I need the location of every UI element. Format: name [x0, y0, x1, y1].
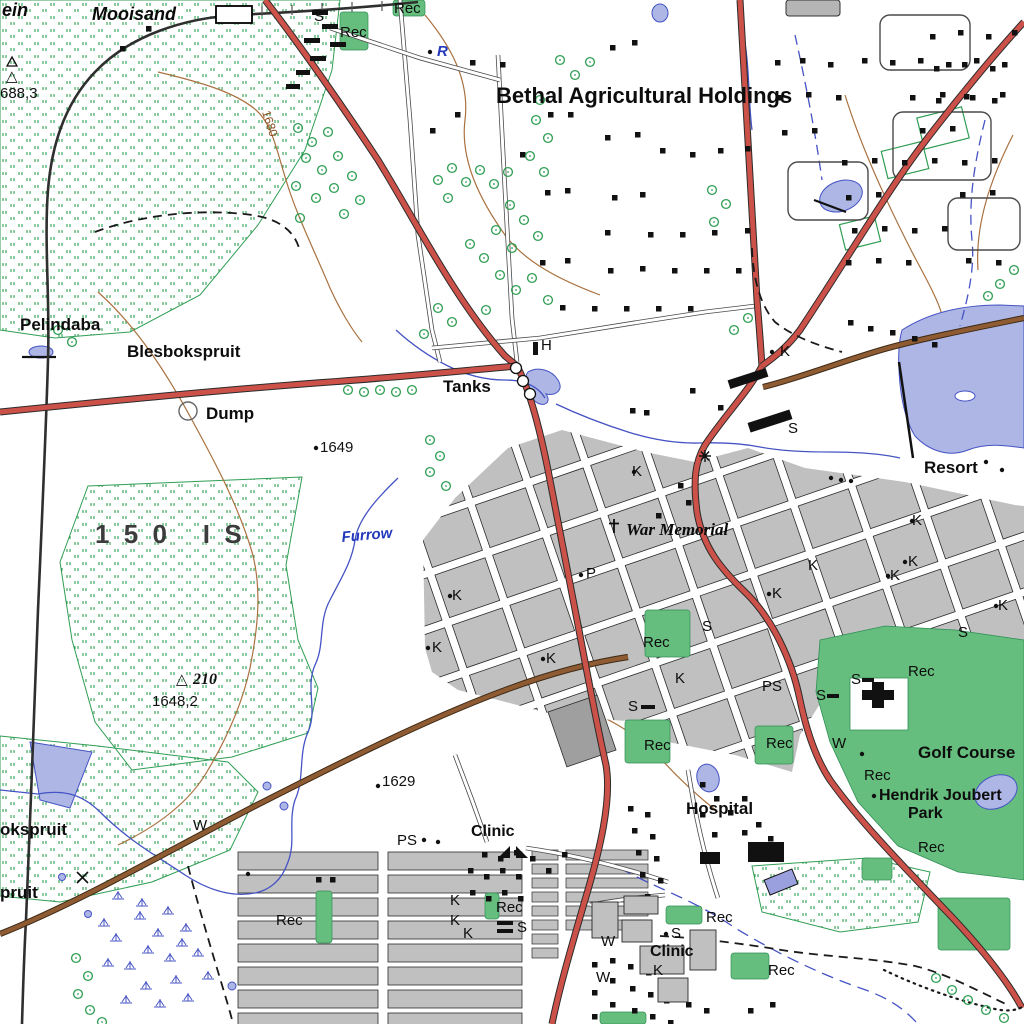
tree-dot [1013, 269, 1015, 271]
settlement-block [658, 978, 688, 1002]
building [890, 60, 896, 66]
map-label-war-memorial: War Memorial [626, 520, 728, 539]
rec-ground [600, 1012, 646, 1024]
building [848, 320, 854, 326]
marker-dot [829, 476, 833, 480]
tree-dot [479, 169, 481, 171]
map-label-k: K [546, 650, 556, 667]
map-label-1649: 1649 [320, 439, 353, 456]
building [654, 856, 660, 862]
building [736, 268, 742, 274]
tree-dot [987, 295, 989, 297]
building [644, 410, 650, 416]
township-block [238, 990, 378, 1008]
building [970, 95, 976, 101]
tree-dot [363, 391, 365, 393]
tree-dot [523, 219, 525, 221]
map-label-k: K [463, 925, 473, 942]
tank-icon [511, 363, 522, 374]
map-label-k: K [450, 912, 460, 929]
township-block [238, 967, 378, 985]
marker-dot [860, 752, 864, 756]
building [640, 266, 646, 272]
map-label-s: S [851, 671, 861, 688]
map-label-210: 210 [192, 671, 217, 688]
building [990, 66, 996, 72]
building [920, 128, 926, 134]
map-label-hospital: Hospital [686, 799, 753, 818]
rec-ground [862, 858, 892, 880]
building [950, 126, 956, 132]
building [876, 192, 882, 198]
tree-dot [547, 137, 549, 139]
tank-icon [518, 376, 529, 387]
tree-dot [535, 119, 537, 121]
building [650, 834, 656, 840]
building [430, 128, 436, 134]
building [146, 26, 152, 32]
map-label-h: H [541, 337, 552, 354]
township-strip [532, 892, 558, 902]
map-label-golf-course: Golf Course [918, 743, 1015, 762]
map-label-w: W [601, 933, 616, 950]
tree-dot [559, 59, 561, 61]
tree-dot [589, 61, 591, 63]
building [1000, 92, 1006, 98]
building [962, 160, 968, 166]
map-label-k: K [452, 587, 462, 604]
pond [652, 4, 668, 22]
building [624, 306, 630, 312]
tree-dot [485, 309, 487, 311]
map-label-p: P [586, 565, 596, 582]
tree-dot [711, 189, 713, 191]
building [502, 890, 508, 896]
building [648, 232, 654, 238]
building [640, 192, 646, 198]
map-label-s: S [671, 925, 681, 942]
map-label-rec: Rec [276, 912, 303, 929]
building [678, 483, 684, 489]
tree-dot [379, 389, 381, 391]
tree-dot [343, 213, 345, 215]
building-bar [322, 24, 338, 29]
tree-dot [713, 221, 715, 223]
map-label-blesbokspruit: Blesbokspruit [127, 342, 241, 361]
building [568, 112, 574, 118]
marker-dot [579, 573, 583, 577]
building [690, 388, 696, 394]
building [632, 40, 638, 46]
tree-dot [543, 171, 545, 173]
building [672, 268, 678, 274]
building [718, 405, 724, 411]
lake-island [955, 391, 975, 401]
tree-dot [351, 175, 353, 177]
building-bar [296, 70, 310, 75]
tree-dot [445, 485, 447, 487]
marker-dot [839, 478, 843, 482]
building [470, 60, 476, 66]
building-bar [827, 694, 839, 698]
building [690, 152, 696, 158]
map-label-r: R [437, 43, 448, 60]
map-label-ein: ein [2, 0, 28, 20]
building [640, 872, 646, 878]
monument-icon [533, 342, 538, 355]
map-label-s: S [628, 698, 638, 715]
map-label-rec: Rec [643, 634, 670, 651]
building-bar [310, 56, 326, 61]
building [592, 306, 598, 312]
building [910, 95, 916, 101]
building [960, 192, 966, 198]
building [548, 112, 554, 118]
township-block [388, 1013, 522, 1024]
building [565, 258, 571, 264]
township-strip [532, 920, 558, 930]
tree-dot [327, 131, 329, 133]
township-block [238, 944, 378, 962]
map-label-rec: Rec [706, 909, 733, 926]
map-label-s: S [788, 420, 798, 437]
building-bar [304, 38, 320, 43]
building [852, 228, 858, 234]
building [486, 896, 492, 902]
tree-dot [574, 74, 576, 76]
map-label--: △ [176, 671, 188, 688]
tree-dot [437, 307, 439, 309]
tree-dot [733, 329, 735, 331]
map-label-rec: Rec [766, 735, 793, 752]
building [912, 336, 918, 342]
tree-dot [951, 989, 953, 991]
map-label-clinic: Clinic [650, 943, 694, 960]
star-icon [699, 450, 711, 462]
building [686, 1002, 692, 1008]
map-label--: △ [6, 68, 18, 85]
township-block [238, 852, 378, 870]
map-label-okspruit: okspruit [0, 820, 67, 839]
building [986, 34, 992, 40]
map-label-k: K [772, 585, 782, 602]
building [930, 34, 936, 40]
resort-lake [899, 305, 1024, 453]
tree-dot [935, 977, 937, 979]
building [828, 62, 834, 68]
township-block [388, 967, 522, 985]
map-label-rec: Rec [918, 839, 945, 856]
building [902, 160, 908, 166]
township-strip [532, 864, 558, 874]
building [966, 258, 972, 264]
map-label-rec: Rec [496, 899, 523, 916]
marker-dot [314, 446, 318, 450]
building [846, 260, 852, 266]
map-label-1629: 1629 [382, 773, 415, 790]
marker-dot [422, 838, 426, 842]
tree-dot [747, 317, 749, 319]
township-strip [532, 906, 558, 916]
building [630, 986, 636, 992]
map-label-k: K [632, 463, 642, 480]
station-building [216, 6, 252, 23]
building [890, 330, 896, 336]
building [882, 226, 888, 232]
map-label-k: K [450, 892, 460, 909]
building-bar [748, 842, 784, 862]
map-label-rec: Rec [644, 737, 671, 754]
building [632, 1008, 638, 1014]
building [592, 990, 598, 996]
map-label-k: K [780, 343, 790, 360]
map-label-688-3: 688,3 [0, 85, 38, 102]
marker-dot [426, 646, 430, 650]
building [990, 190, 996, 196]
map-label-k: K [890, 567, 900, 584]
map-label-park: Park [908, 805, 943, 822]
township-block [238, 898, 378, 916]
building [704, 1008, 710, 1014]
tree-dot [437, 179, 439, 181]
building [712, 230, 718, 236]
tree-dot [359, 199, 361, 201]
building [562, 852, 568, 858]
building [775, 60, 781, 66]
map-label-hendrik-joubert: Hendrik Joubert [879, 787, 1002, 804]
building [560, 305, 566, 311]
building [610, 958, 616, 964]
building [482, 852, 488, 858]
map-label-rec: Rec [768, 962, 795, 979]
tree-dot [297, 127, 299, 129]
building-bar [862, 678, 874, 682]
building [656, 513, 662, 519]
map-label-tanks: Tanks [443, 377, 491, 396]
building [940, 92, 946, 98]
tree-dot [547, 299, 549, 301]
map-label-1648-2: 1648,2 [152, 693, 198, 710]
map-label-s: S [702, 618, 712, 635]
map-label-rec: Rec [864, 767, 891, 784]
tree-dot [347, 389, 349, 391]
building [605, 230, 611, 236]
building [932, 158, 938, 164]
building [610, 1002, 616, 1008]
building [700, 782, 706, 788]
building [912, 228, 918, 234]
map-label-pelindaba: Pelindaba [20, 315, 101, 334]
map-label-k: K [908, 553, 918, 570]
township-block [388, 990, 522, 1008]
building [540, 260, 546, 266]
building [520, 152, 526, 158]
tree-dot [395, 391, 397, 393]
tree-dot [499, 274, 501, 276]
building [932, 342, 938, 348]
building [610, 978, 616, 984]
building [745, 146, 751, 152]
building [842, 160, 848, 166]
tree-dot [515, 289, 517, 291]
building [996, 260, 1002, 266]
tree-dot [509, 204, 511, 206]
settlement-block [690, 930, 716, 970]
building-bar [641, 705, 655, 709]
building [455, 112, 461, 118]
tree-dot [305, 157, 307, 159]
map-label-s: S [517, 919, 527, 936]
map-label-k: K [675, 670, 685, 687]
tree-dot [333, 187, 335, 189]
township-strip [532, 934, 558, 944]
building [470, 890, 476, 896]
building [530, 856, 536, 862]
tree-dot [469, 243, 471, 245]
map-label-w: W [193, 817, 208, 834]
building [316, 877, 322, 883]
building [942, 226, 948, 232]
marker-dot [984, 460, 988, 464]
tree-dot [299, 217, 301, 219]
tree-dot [439, 455, 441, 457]
building [946, 62, 952, 68]
tree-dot [447, 197, 449, 199]
building [992, 98, 998, 104]
building [648, 992, 654, 998]
building-bar [497, 929, 513, 933]
building [565, 188, 571, 194]
township-strip [566, 878, 648, 888]
tree-dot [451, 167, 453, 169]
tree-dot [101, 1021, 103, 1023]
building [862, 58, 868, 64]
tree-dot [75, 957, 77, 959]
marker-dot [246, 872, 250, 876]
map-label-bethal-agricultural-holdings: Bethal Agricultural Holdings [496, 83, 792, 108]
rec-ground [731, 953, 769, 979]
tree-dot [315, 197, 317, 199]
tree-dot [1003, 1017, 1005, 1019]
building-bar [700, 852, 720, 864]
building [500, 62, 506, 68]
tree-dot [87, 975, 89, 977]
map-label-150-is: 150 IS [95, 519, 256, 549]
map-label-pruit: pruit [0, 883, 38, 902]
tree-dot [495, 229, 497, 231]
pondlet [228, 982, 236, 990]
map-label-s: S [314, 8, 324, 25]
township-strip [532, 948, 558, 958]
tree-dot [77, 993, 79, 995]
map-label-mooisand: Mooisand [92, 4, 177, 24]
building [718, 148, 724, 154]
building [906, 260, 912, 266]
building-bar [286, 84, 300, 89]
tank-icon [525, 389, 536, 400]
topo-map: einMooisandSRecRecRBethal Agricultural H… [0, 0, 1024, 1024]
map-label-ps: PS [397, 832, 417, 849]
building [660, 148, 666, 154]
tree-dot [71, 341, 73, 343]
building [628, 964, 634, 970]
building [656, 306, 662, 312]
building [686, 500, 692, 506]
township-block [238, 921, 378, 939]
map-label-ps: PS [762, 678, 782, 695]
map-label-k: K [912, 512, 922, 529]
building-bar [330, 42, 346, 47]
tree-dot [483, 257, 485, 259]
tree-dot [967, 999, 969, 1001]
building [545, 190, 551, 196]
tree-dot [337, 155, 339, 157]
building [800, 58, 806, 64]
building [650, 1014, 656, 1020]
building [635, 132, 641, 138]
pondlet [263, 782, 271, 790]
building [756, 822, 762, 828]
settlement-block [622, 920, 652, 942]
marker-dot [1000, 468, 1004, 472]
tree-dot [295, 185, 297, 187]
rec-ground [316, 891, 332, 943]
map-canvas: einMooisandSRecRecRBethal Agricultural H… [0, 0, 1024, 1024]
tree-dot [89, 1009, 91, 1011]
pondlet [85, 911, 92, 918]
building [812, 128, 818, 134]
building [468, 868, 474, 874]
rec-ground [666, 906, 702, 924]
building [964, 94, 970, 100]
township-block [238, 875, 378, 893]
tree-dot [465, 181, 467, 183]
building [608, 268, 614, 274]
map-label-rec: Rec [908, 663, 935, 680]
building [632, 828, 638, 834]
building [918, 58, 924, 64]
building [516, 874, 522, 880]
map-label-k: K [808, 557, 818, 574]
building [974, 58, 980, 64]
building [846, 195, 852, 201]
map-label-rec: Rec [340, 24, 367, 41]
marker-dot [428, 50, 432, 54]
tree-dot [493, 183, 495, 185]
building [645, 812, 651, 818]
marker-dot [376, 784, 380, 788]
map-label-rec: Rec [394, 0, 421, 17]
marker-dot [664, 932, 668, 936]
building [668, 1020, 674, 1024]
building [612, 195, 618, 201]
pondlet [280, 802, 288, 810]
building [605, 135, 611, 141]
marker-dot [849, 479, 853, 483]
industrial-building-nr [786, 0, 840, 16]
map-label-k: K [998, 597, 1008, 614]
map-label-w: W [832, 735, 847, 752]
building [770, 1002, 776, 1008]
building [712, 832, 718, 838]
tree-dot [529, 155, 531, 157]
building [1012, 30, 1018, 36]
map-label-clinic: Clinic [471, 823, 515, 840]
township-block [238, 1013, 378, 1024]
building [330, 877, 336, 883]
building [742, 830, 748, 836]
building [500, 868, 506, 874]
